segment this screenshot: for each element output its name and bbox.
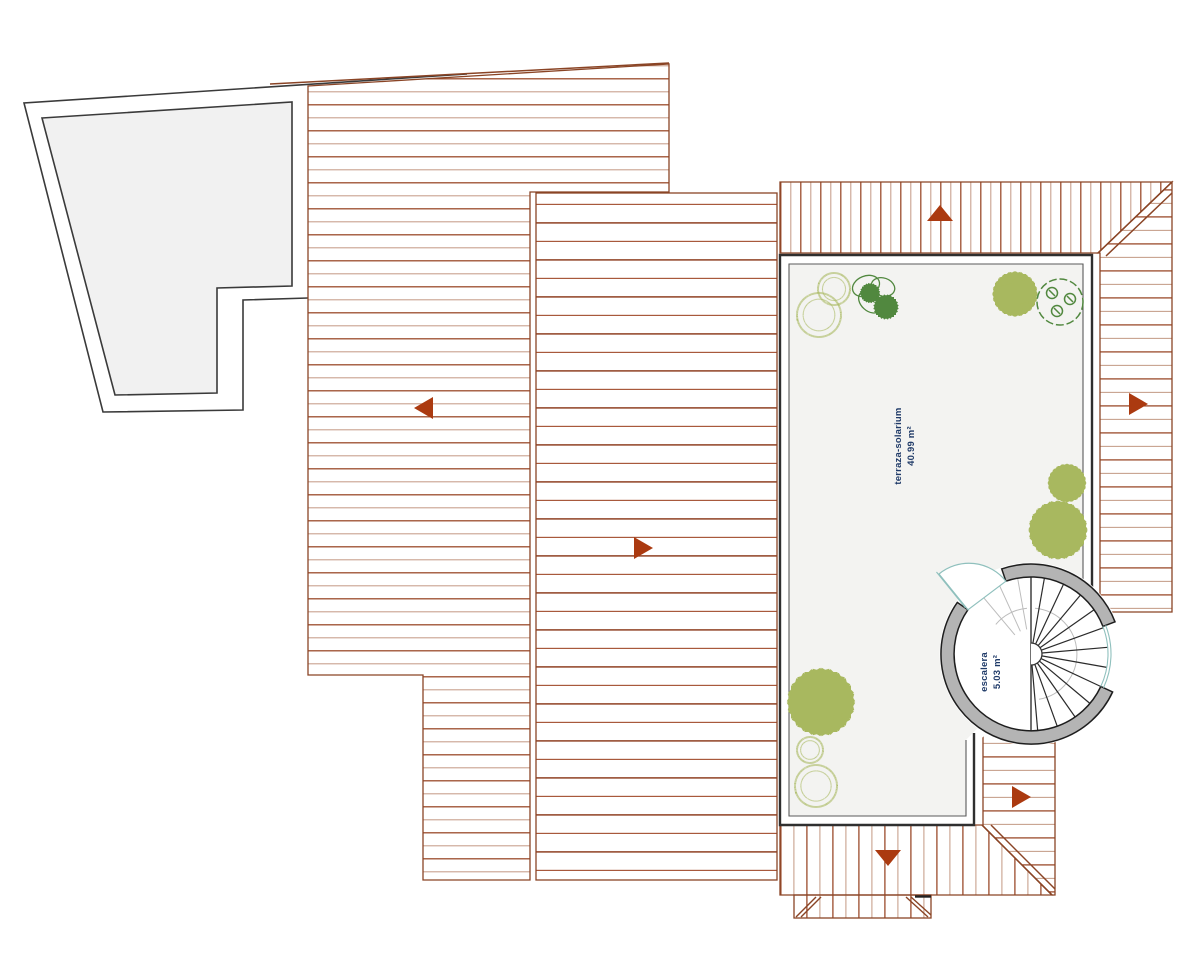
stair-name-label: escalera: [979, 652, 990, 692]
roof-plan-page: terraza-solarium 40.99 m²: [0, 0, 1200, 976]
grass-burst-plant: [1032, 504, 1084, 556]
grass-burst-plant: [995, 274, 1035, 314]
grass-burst-plant: [791, 672, 851, 732]
site-inner-parcel: [42, 102, 292, 395]
terrace-name-label: terraza-solarium: [893, 407, 904, 484]
stair-area-label: 5.03 m²: [992, 655, 1003, 689]
roof-panel-middle: [536, 193, 777, 880]
roof-panel-middle-hatch: [536, 193, 777, 880]
grass-burst-plant: [1050, 466, 1084, 500]
terrace-area-label: 40.99 m²: [906, 426, 917, 466]
roof-plan-drawing: terraza-solarium 40.99 m²: [0, 0, 1200, 976]
chimney-strip: [794, 895, 931, 918]
